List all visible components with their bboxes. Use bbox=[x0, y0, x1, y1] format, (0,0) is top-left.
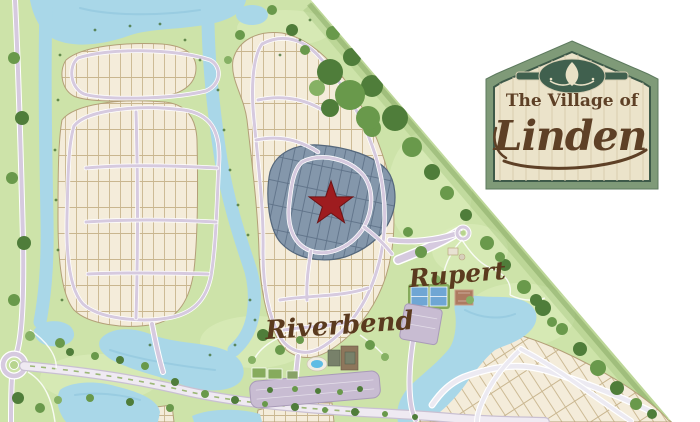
neighborhood-left-south bbox=[58, 101, 198, 327]
amenity-building-2 bbox=[345, 352, 355, 364]
clubhouse-building bbox=[328, 350, 340, 366]
site-map-canvas: Rupert Riverbend The Village of Linden bbox=[0, 0, 700, 422]
sport-court-3 bbox=[287, 371, 298, 379]
mini-roundabout bbox=[457, 227, 469, 239]
village-map: Rupert Riverbend The Village of Linden bbox=[0, 0, 700, 422]
sport-court bbox=[252, 368, 266, 378]
canal-left bbox=[40, 5, 47, 322]
swimming-pool bbox=[311, 360, 323, 368]
sign-line-main: Linden bbox=[493, 112, 647, 160]
pond-top-center bbox=[236, 5, 268, 25]
village-sign: The Village of Linden bbox=[486, 41, 658, 189]
sign-line-top: The Village of bbox=[506, 91, 640, 111]
sport-court-2 bbox=[268, 369, 282, 379]
pavilion bbox=[448, 248, 458, 255]
